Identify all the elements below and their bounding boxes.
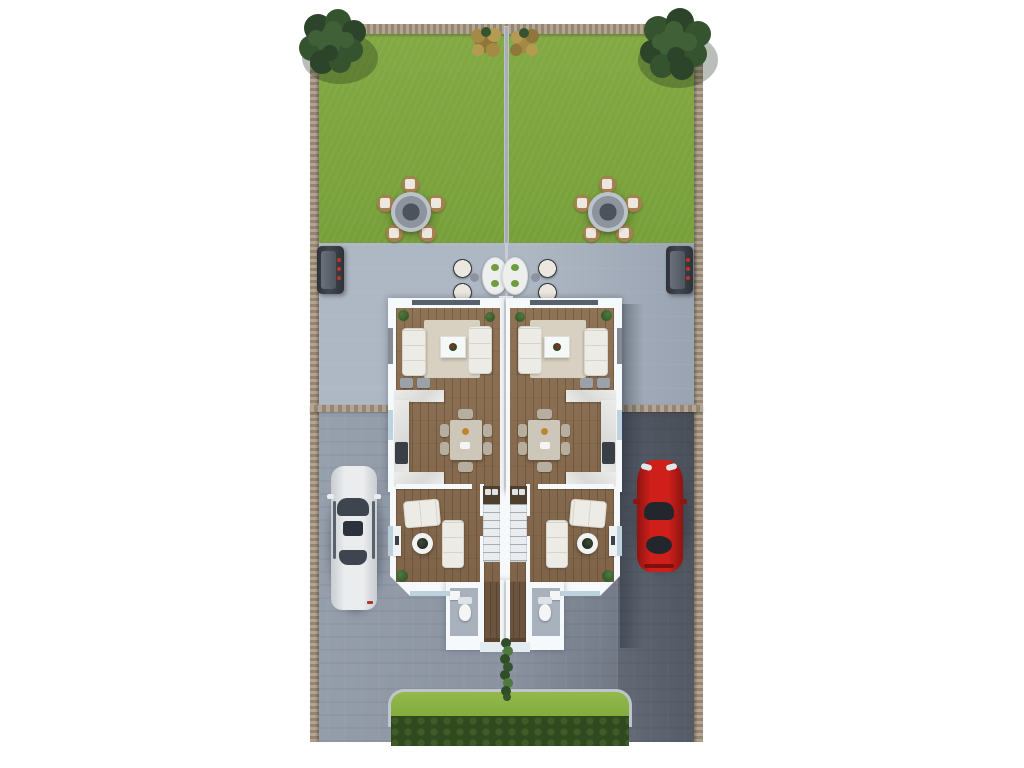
tree-right — [626, 0, 731, 105]
kitchen-appliance — [395, 442, 408, 464]
side-fence-left — [310, 405, 390, 412]
side-mirror — [633, 499, 640, 504]
bar-stool — [417, 378, 430, 388]
duplex-unit-left — [388, 298, 504, 652]
living-room-window — [617, 328, 622, 364]
sitting-room-sofa — [546, 520, 568, 568]
front-window — [410, 591, 452, 596]
stair-landing — [510, 486, 527, 504]
dining-chair — [537, 462, 552, 472]
red-car — [636, 458, 686, 576]
round-side-table — [412, 533, 433, 554]
dining-table — [528, 420, 560, 460]
site-plan-canvas — [0, 0, 1024, 768]
side-table — [531, 273, 540, 282]
dining-chair — [483, 442, 492, 455]
potted-plant — [485, 312, 495, 322]
kitchen-appliance — [602, 442, 615, 464]
round-side-table — [577, 533, 598, 554]
perimeter-fence-right — [694, 24, 703, 742]
dining-chair — [440, 442, 449, 455]
dining-chair — [537, 409, 552, 419]
tree-left — [288, 0, 388, 100]
potted-plant — [602, 570, 614, 582]
dining-chair — [561, 424, 570, 437]
garden-table — [391, 192, 431, 232]
perimeter-fence-left — [310, 24, 319, 742]
patio-door-window — [412, 300, 480, 305]
patio-door-window — [530, 300, 598, 305]
lounge-chair — [453, 259, 472, 278]
sitting-room-sofa — [442, 520, 464, 568]
sitting-room-loveseat — [403, 498, 441, 528]
side-window — [333, 501, 336, 559]
interior-wall — [538, 484, 614, 489]
white-car — [330, 464, 380, 614]
kitchen-counter — [394, 400, 409, 476]
bar-stool — [400, 378, 413, 388]
car-body — [331, 466, 377, 610]
front-hedge-face — [391, 716, 629, 746]
living-room-sofa — [584, 328, 608, 376]
dining-chair — [458, 409, 473, 419]
wall-console — [609, 526, 617, 556]
lounge-chair — [538, 259, 557, 278]
kitchen-counter — [601, 400, 616, 476]
dining-table — [450, 420, 482, 460]
bbq-grill-right — [666, 246, 693, 294]
side-mirror — [374, 494, 381, 499]
front-window — [558, 591, 600, 596]
dining-chair — [561, 442, 570, 455]
staircase — [510, 504, 527, 562]
kitchen-window — [617, 410, 622, 440]
toilet — [459, 604, 471, 621]
autumn-bush-left — [466, 22, 508, 66]
living-room-window — [388, 328, 393, 364]
dining-chair — [518, 442, 527, 455]
rear-window — [339, 550, 367, 565]
hallway-floor — [484, 582, 500, 640]
dining-chair — [483, 424, 492, 437]
taillight — [367, 601, 373, 604]
duplex-unit-right — [506, 298, 622, 652]
living-room-sofa — [468, 326, 492, 374]
living-room-sofa — [402, 328, 426, 376]
kitchen-window — [388, 410, 393, 440]
garden-table — [588, 192, 628, 232]
potted-plant — [515, 312, 525, 322]
side-window — [372, 501, 375, 559]
windshield — [337, 498, 369, 516]
toilet — [539, 604, 551, 621]
potted-plant — [398, 310, 409, 321]
coffee-table — [544, 336, 570, 358]
staircase — [483, 504, 500, 562]
dining-chair — [458, 462, 473, 472]
sitting-room-window — [617, 526, 622, 556]
side-table — [470, 273, 479, 282]
bar-stool — [580, 378, 593, 388]
potted-plant — [601, 310, 612, 321]
dining-chair — [440, 424, 449, 437]
bar-stool — [597, 378, 610, 388]
autumn-bush-right — [506, 24, 546, 66]
rear-window — [646, 536, 672, 554]
garden-chair — [599, 176, 616, 193]
dining-chair — [518, 424, 527, 437]
potted-plant — [396, 570, 408, 582]
wall-console — [393, 526, 401, 556]
side-mirror — [680, 499, 687, 504]
bbq-grill-left — [317, 246, 344, 294]
living-room-sofa — [518, 326, 542, 374]
toilet-tank — [538, 597, 552, 604]
stair-landing — [483, 486, 500, 504]
patio-table — [502, 257, 528, 295]
front-path-plants — [498, 638, 516, 700]
interior-wall — [396, 484, 472, 489]
sitting-room-loveseat — [569, 498, 607, 528]
taillight — [644, 564, 674, 568]
sunroof — [343, 521, 363, 536]
windshield — [644, 502, 674, 520]
toilet-tank — [458, 597, 472, 604]
garden-chair — [402, 176, 419, 193]
side-mirror — [327, 494, 334, 499]
hallway-floor — [510, 582, 526, 640]
coffee-table — [440, 336, 466, 358]
